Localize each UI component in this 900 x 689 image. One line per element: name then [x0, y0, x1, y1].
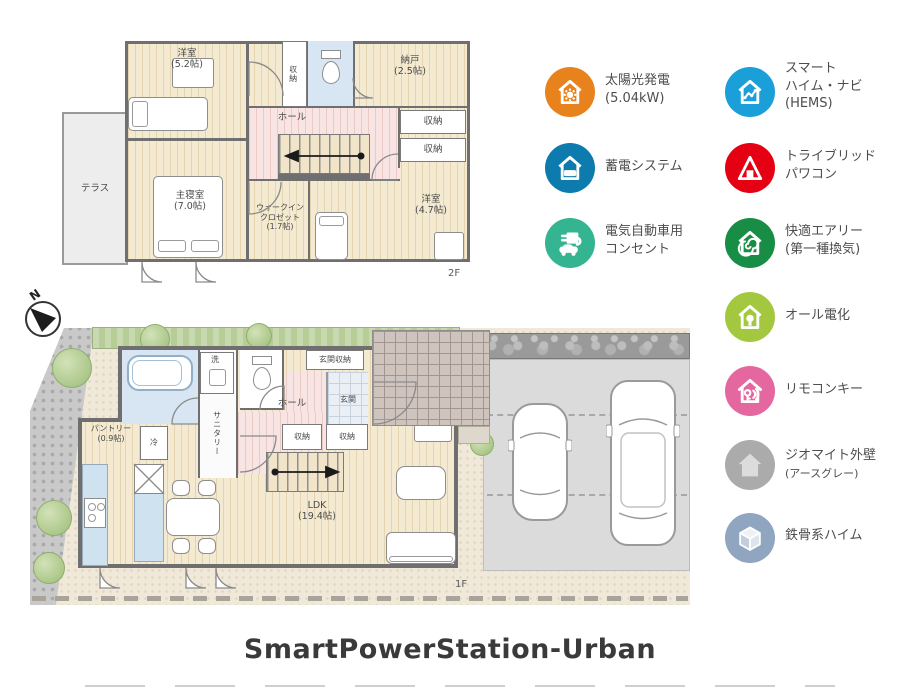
feature-label: スマートハイム・ナビ(HEMS)	[785, 60, 862, 113]
pillow	[132, 101, 148, 127]
feature-label: 太陽光発電(5.04kW)	[605, 72, 670, 107]
tree	[33, 552, 65, 584]
bottom-rule	[85, 685, 835, 687]
remote-key-house-icon	[725, 366, 775, 416]
floor-plan-sheet: テラス 収納 収納	[0, 0, 900, 689]
pillow	[158, 240, 186, 252]
closet-label: 収納	[294, 432, 310, 442]
sofa-back	[389, 556, 453, 562]
sink-icon	[209, 369, 226, 386]
dining-chair	[172, 538, 190, 554]
closet-label: 収納	[339, 432, 355, 442]
room-label-storeroom: 納戸(2.5帖)	[372, 55, 448, 78]
entrance-label: 玄関	[340, 395, 356, 405]
feature-label: トライブリッドパワコン	[785, 148, 876, 183]
dining-chair	[198, 538, 216, 554]
north-arrow-icon	[22, 298, 64, 340]
room-label-closet-top: 収納	[288, 52, 298, 96]
room-label-hall2f: ホール	[262, 112, 322, 123]
room-label-wic: ウォークインクロゼット(1.7帖)	[250, 203, 310, 232]
wall-segment	[78, 564, 458, 568]
bathtub-inner	[132, 360, 182, 386]
feature-label: 電気自動車用コンセント	[605, 223, 683, 258]
stove-icon	[84, 498, 106, 528]
hems-graph-house-icon	[725, 67, 775, 117]
wall-segment	[249, 179, 400, 181]
toilet-icon	[253, 367, 271, 390]
feature-label: リモコンキー	[785, 381, 863, 399]
battery-house-icon	[545, 143, 595, 193]
ventilation-house-icon	[725, 218, 775, 268]
feature-label: ジオマイト外壁(アースグレー)	[785, 447, 876, 482]
steel-frame-cube-icon	[725, 513, 775, 563]
road-edge	[32, 596, 688, 601]
toilet-icon	[321, 50, 341, 59]
feature-label: 蓄電システム	[605, 158, 683, 176]
fridge-label: 冷	[150, 438, 158, 448]
room-label-bedroom52: 洋室(5.2帖)	[132, 48, 242, 71]
floor2-stairs	[278, 134, 370, 174]
floor2-label: 2F	[448, 268, 460, 279]
laundry-vanity: 洗	[200, 352, 234, 394]
prep-table	[134, 464, 164, 494]
closet-label: 収納	[423, 144, 442, 155]
room-label-ldk: LDK(19.4帖)	[282, 500, 352, 523]
floor1-label: 1F	[455, 579, 467, 590]
floor2-closet-right-2: 収納	[400, 138, 466, 162]
entrance-storage-label: 玄関収納	[319, 355, 351, 365]
toilet-icon	[252, 356, 272, 365]
floor1-stairs	[266, 452, 344, 492]
pillow	[319, 216, 344, 226]
car-compact-icon	[508, 398, 572, 526]
room-label-bedroom47: 洋室(4.7帖)	[398, 194, 464, 217]
porch-canopy	[372, 330, 490, 426]
feature-label: 快適エアリー(第一種換気)	[785, 223, 863, 258]
tv-counter	[414, 424, 452, 442]
entry-step	[458, 426, 490, 444]
wall-segment	[125, 138, 249, 141]
pillow	[191, 240, 219, 252]
plan-title: SmartPowerStation-Urban	[0, 634, 900, 665]
coffee-table	[396, 466, 446, 500]
entrance-storage: 玄関収納	[306, 350, 364, 370]
feature-label: オール電化	[785, 307, 850, 325]
laundry-label: 洗	[211, 355, 219, 365]
fridge: 冷	[140, 426, 168, 460]
terrace-label: テラス	[81, 183, 109, 194]
wall-segment	[353, 41, 355, 108]
wall-segment	[78, 418, 122, 422]
entrance-floor: 玄関	[326, 372, 368, 428]
toilet-icon	[322, 61, 340, 84]
desk	[434, 232, 464, 260]
hall1f-label: ホール	[262, 398, 322, 409]
tree	[36, 500, 72, 536]
car-suv-icon	[606, 373, 680, 553]
wall-segment	[246, 41, 249, 262]
floor1-closet-2: 収納	[326, 424, 368, 450]
floor2-closet-right-1: 収納	[400, 110, 466, 134]
solar-house-icon	[545, 67, 595, 117]
ev-plug-car-icon	[545, 218, 595, 268]
power-conditioner-icon	[725, 143, 775, 193]
floor1-closet-1: 収納	[282, 424, 322, 450]
feature-label: 鉄骨系ハイム	[785, 527, 862, 545]
tree	[52, 348, 92, 388]
dining-table	[166, 498, 220, 536]
pantry-label: パントリー(0.9帖)	[82, 424, 140, 443]
stone-wall	[483, 333, 690, 359]
dining-chair	[198, 480, 216, 496]
terrace: テラス	[62, 112, 128, 265]
room-label-master: 主寝室(7.0帖)	[158, 190, 222, 213]
exterior-wall-house-icon	[725, 440, 775, 490]
dining-chair	[172, 480, 190, 496]
closet-label: 収納	[423, 116, 442, 127]
sanitary-label: サニタリー	[212, 398, 222, 468]
all-electric-bulb-house-icon	[725, 292, 775, 342]
